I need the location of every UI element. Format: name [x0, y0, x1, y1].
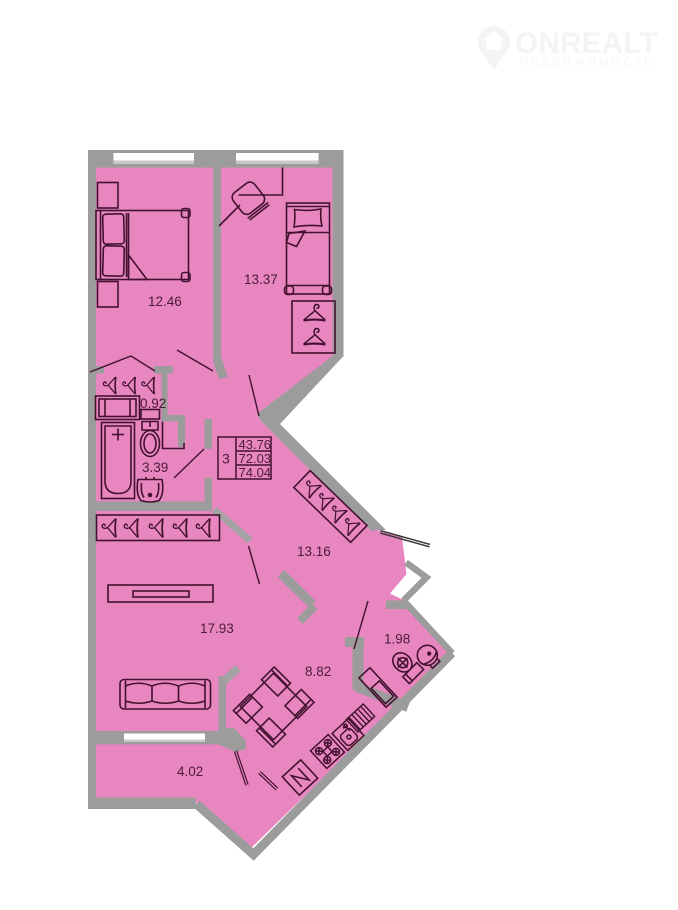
svg-text:74.04: 74.04: [239, 465, 272, 480]
svg-text:43.76: 43.76: [239, 437, 272, 452]
svg-text:13.37: 13.37: [244, 272, 278, 287]
svg-text:3: 3: [222, 451, 230, 467]
svg-text:ONREALT: ONREALT: [515, 27, 658, 60]
svg-text:72.03: 72.03: [239, 451, 272, 466]
svg-text:НЕДВИЖИМОСТЬ: НЕДВИЖИМОСТЬ: [520, 57, 654, 69]
svg-text:3.39: 3.39: [142, 460, 168, 475]
svg-text:12.46: 12.46: [148, 294, 182, 309]
svg-text:13.16: 13.16: [297, 544, 331, 559]
svg-text:17.93: 17.93: [200, 621, 234, 636]
svg-text:4.02: 4.02: [177, 764, 203, 779]
svg-text:8.82: 8.82: [305, 664, 331, 679]
svg-text:1.98: 1.98: [384, 632, 410, 647]
